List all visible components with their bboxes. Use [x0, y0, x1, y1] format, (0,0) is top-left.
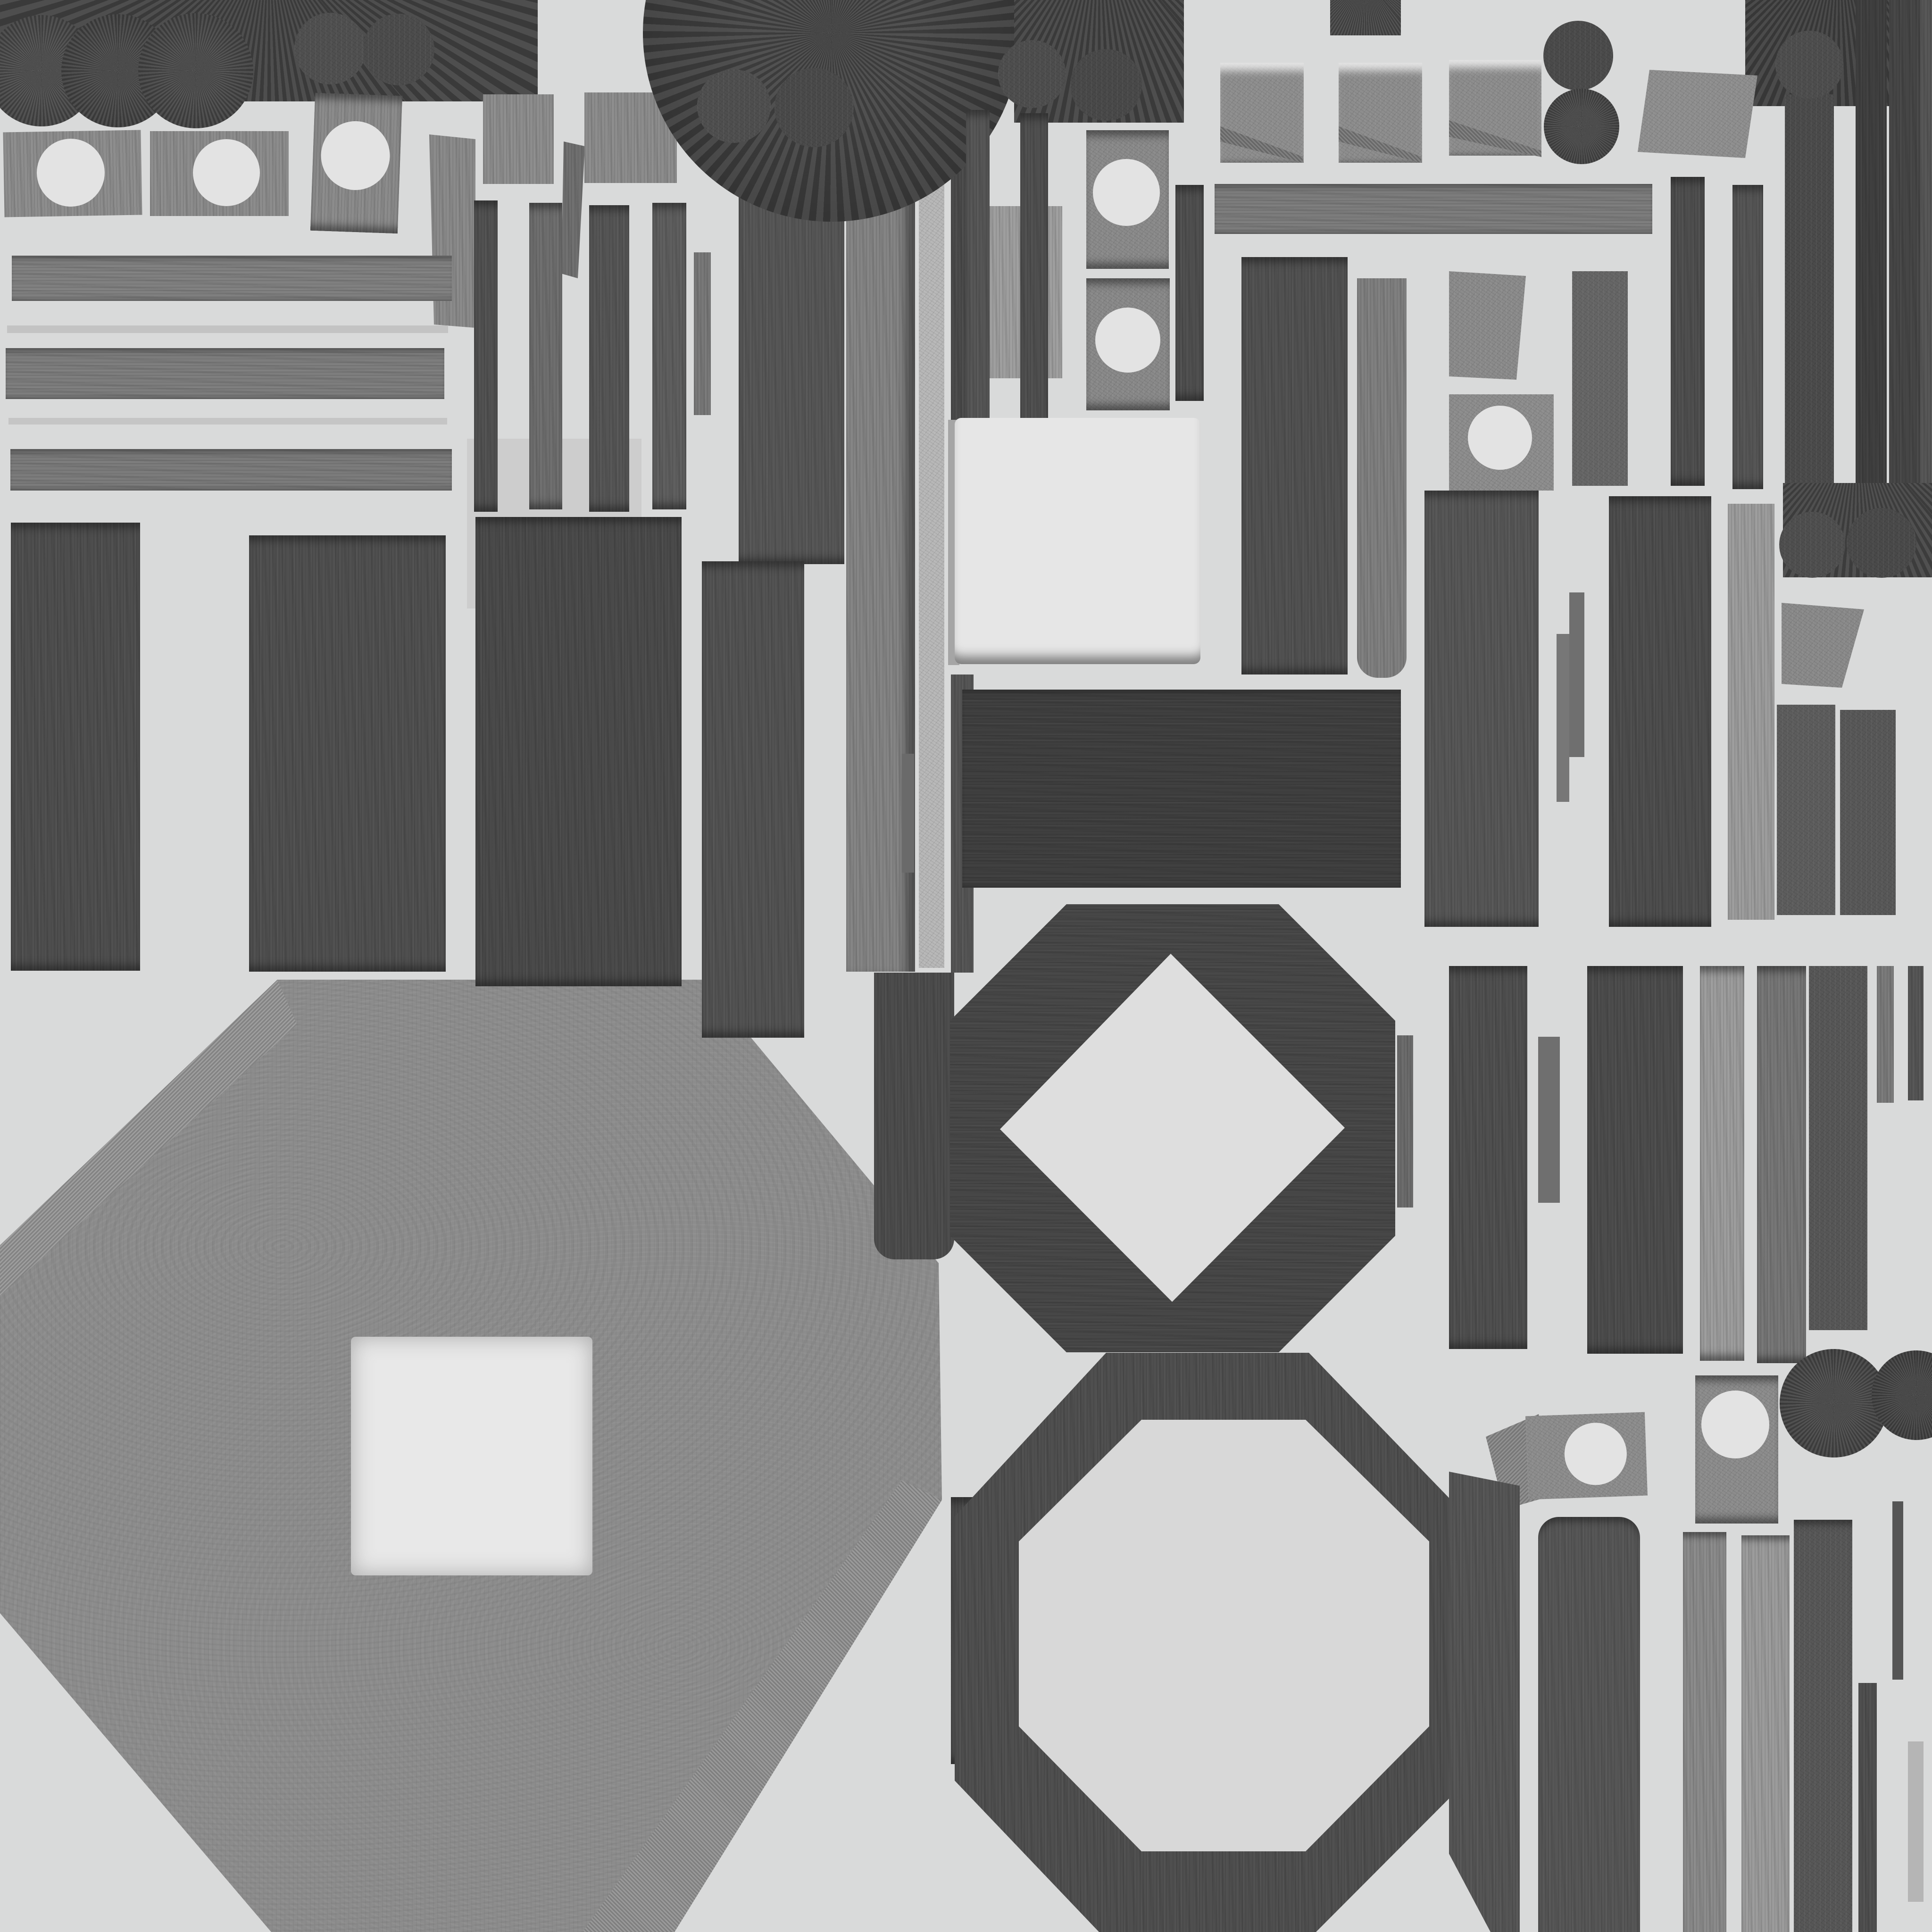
- trunk-lower: [702, 561, 804, 1038]
- butcher-square-d: [483, 94, 554, 184]
- column-l2: [1700, 966, 1744, 1361]
- column-scratched-5: [1809, 966, 1867, 1330]
- hole-square-2-hole: [193, 139, 260, 206]
- butcher-sliver: [561, 142, 585, 278]
- log-end-scratched-5: [998, 40, 1066, 108]
- column-j2: [1449, 966, 1527, 1349]
- table-center-hole: [351, 1337, 592, 1575]
- edge-strip-r4: [1877, 966, 1894, 1103]
- ring-side-strip: [1397, 1035, 1413, 1207]
- log-end-scratched-1: [294, 13, 366, 84]
- light-strip-bottom-right: [1908, 1741, 1924, 1902]
- arrow-trapezoid: [1782, 603, 1864, 688]
- thin-strip-2: [1892, 1501, 1903, 1680]
- hole-square-3: [310, 93, 402, 233]
- picket-r2: [1020, 113, 1048, 441]
- big-plank-b: [249, 535, 446, 972]
- picket-1: [474, 200, 498, 512]
- edge-strip-r1: [1856, 0, 1887, 531]
- plank-horizontal-2: [6, 348, 444, 399]
- scratched-column: [1572, 271, 1628, 486]
- scratch-block-1: [1777, 705, 1835, 915]
- picket-sliver: [694, 252, 711, 415]
- plank-j: [1424, 491, 1539, 927]
- texture-atlas: [0, 0, 1932, 1932]
- hole-square-1: [3, 130, 142, 217]
- plank-shadow-strip-1: [7, 325, 448, 333]
- trapezoid-piece-right: [1449, 271, 1526, 380]
- picket-r1: [966, 110, 990, 440]
- log-fan-small: [1544, 89, 1619, 164]
- hole-square-3-hole: [320, 120, 391, 191]
- hole-square-2: [150, 131, 289, 216]
- big-plank-c: [475, 517, 682, 986]
- starburst-bottom-1: [1780, 1349, 1888, 1457]
- log-end-scratched-4: [774, 68, 854, 147]
- log-end-scratched-9: [1847, 508, 1916, 578]
- hole-square-1-hole: [36, 138, 105, 207]
- picket-4: [652, 203, 686, 509]
- column-b-bottom: [1538, 1517, 1640, 1932]
- hole-square-4-hole: [1093, 159, 1160, 226]
- hole-square-8-hole: [1701, 1391, 1769, 1458]
- light-square-plate: [955, 418, 1200, 664]
- hole-square-7-hole: [1564, 1422, 1628, 1486]
- beam-horizontal-dark: [962, 690, 1401, 888]
- picket-2: [529, 203, 562, 509]
- sliver-dark-small: [902, 754, 914, 873]
- sliver-dark-2: [1175, 185, 1204, 401]
- mid-plank-1: [1671, 177, 1705, 486]
- hole-square-7: [1525, 1412, 1648, 1500]
- trunk-2: [1241, 257, 1348, 675]
- plank-shadow-strip-2: [8, 418, 447, 425]
- plank-medium-2: [1357, 278, 1407, 678]
- hole-square-6-hole: [1468, 406, 1532, 470]
- plank-l: [1728, 504, 1774, 920]
- mid-plank-2: [1732, 185, 1763, 489]
- side-tab-1: [1569, 592, 1584, 757]
- log-top-band-small: [1330, 0, 1401, 35]
- log-end-scratched-2: [363, 14, 434, 85]
- log-end-scratched-3: [697, 69, 771, 143]
- plank-horizontal-4: [1215, 184, 1652, 234]
- hole-square-8: [1695, 1375, 1778, 1524]
- log-end-scratched-8: [1779, 512, 1845, 578]
- column-k2: [1587, 966, 1683, 1354]
- log-circle-3: [138, 13, 253, 128]
- thin-strip-1: [1858, 1683, 1877, 1932]
- trunk-column-scratched: [1785, 94, 1834, 533]
- edge-strip-r3: [1920, 0, 1932, 531]
- column-a-bottom: [1449, 1472, 1520, 1932]
- big-plank-a: [11, 523, 140, 971]
- column-d-bottom: [1741, 1535, 1790, 1932]
- log-end-scratched-6: [1070, 49, 1142, 121]
- hole-square-4: [1086, 130, 1169, 269]
- side-tab-2: [1557, 634, 1569, 802]
- picket-3: [589, 205, 629, 512]
- column-medium-4: [1757, 966, 1806, 1363]
- plank-k: [1609, 496, 1711, 927]
- trunk-cap-circle: [1775, 31, 1843, 99]
- edge-strip-r5: [1908, 966, 1924, 1100]
- side-tab-3: [1538, 1037, 1560, 1203]
- hole-square-6: [1449, 394, 1554, 491]
- octagon-ring-hole: [1019, 1420, 1429, 1851]
- log-end-scratched-7: [1543, 21, 1613, 91]
- edge-strip-r2: [1889, 0, 1920, 531]
- hole-square-5-hole: [1095, 308, 1160, 373]
- parallelogram-piece: [1638, 70, 1757, 158]
- rounded-post-piece: [874, 973, 954, 1259]
- column-c-bottom: [1683, 1532, 1726, 1932]
- scratch-block-2: [1840, 710, 1896, 915]
- hole-square-5: [1086, 278, 1170, 410]
- plank-horizontal-1: [12, 256, 452, 301]
- plank-horizontal-3: [10, 449, 452, 491]
- column-e-bottom: [1794, 1520, 1852, 1932]
